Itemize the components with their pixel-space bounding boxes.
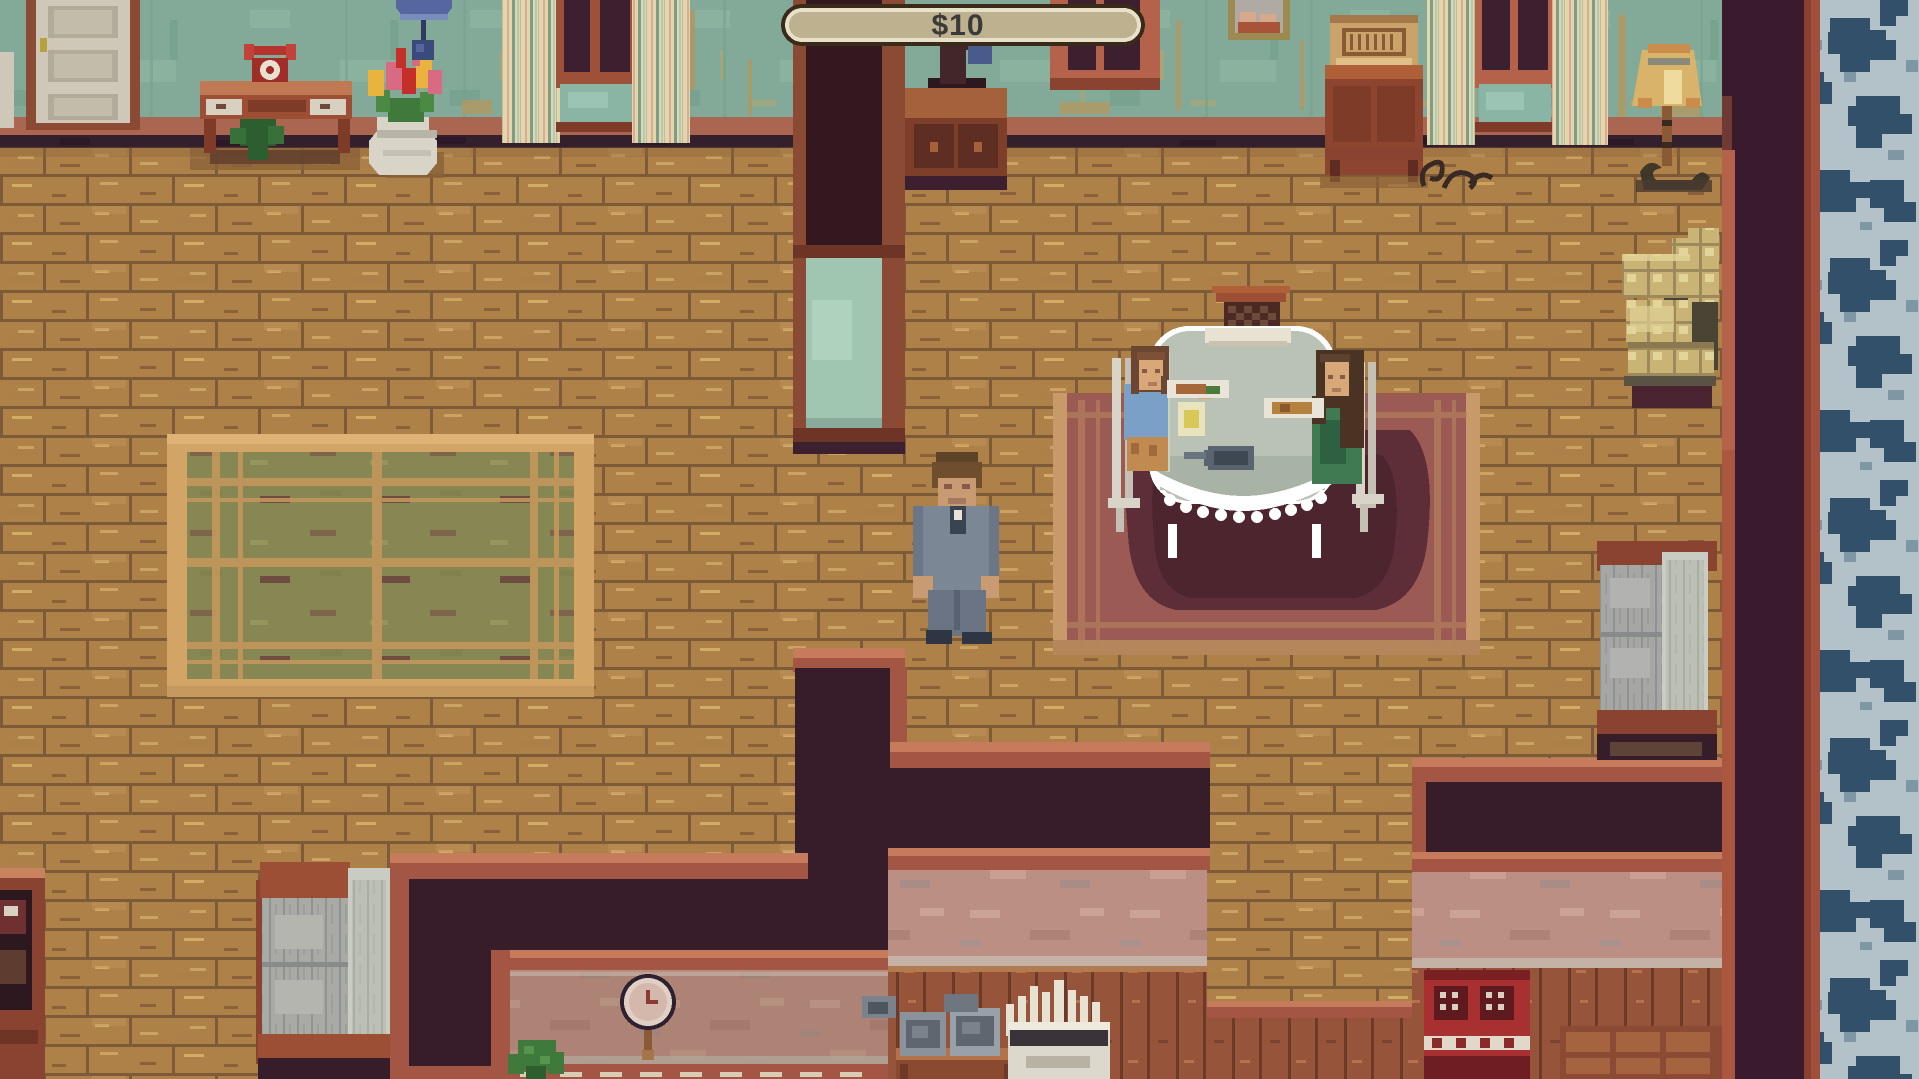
svg-text:$10: $10 — [931, 9, 984, 42]
